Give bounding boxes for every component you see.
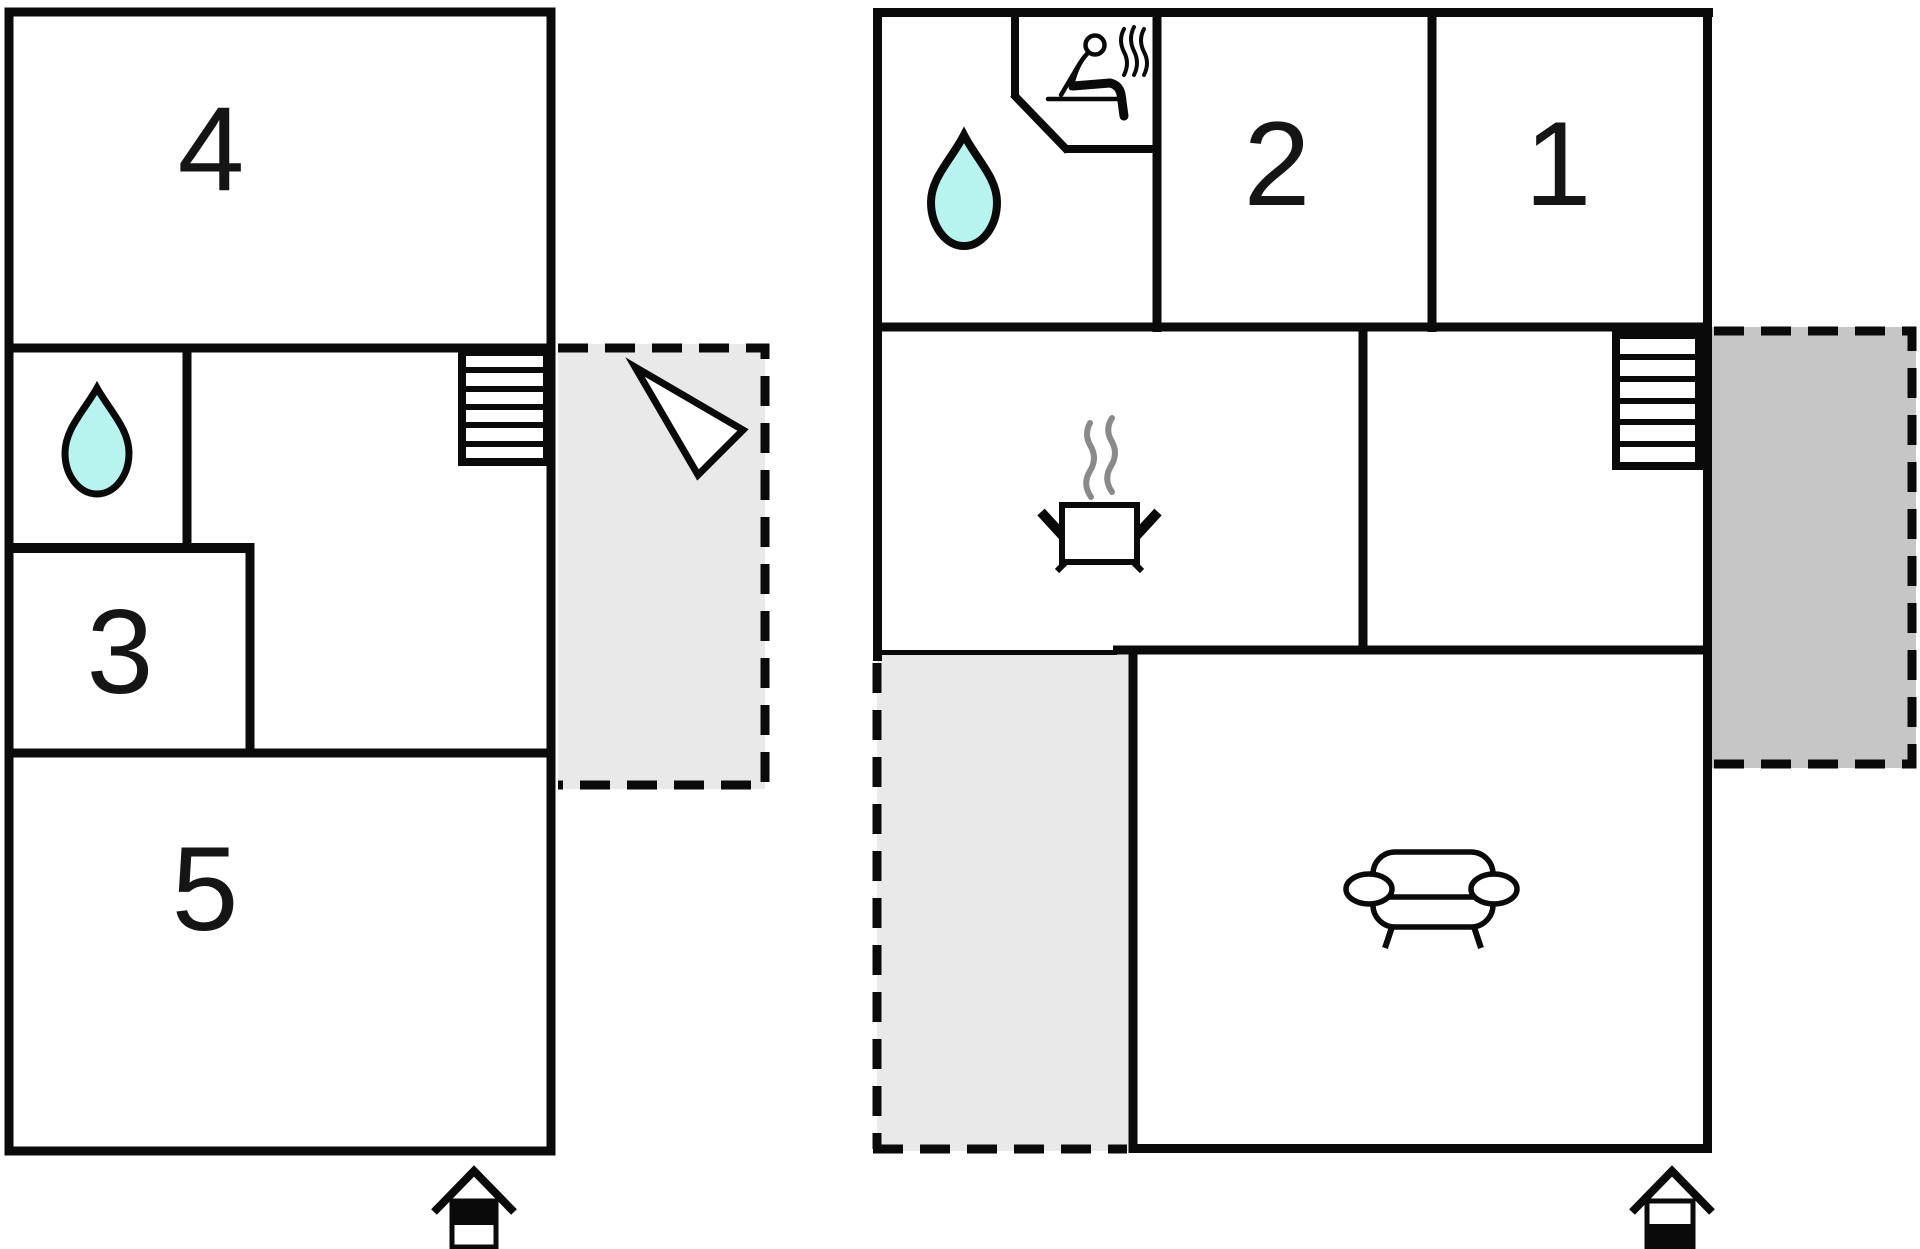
right-plan: 2 1 bbox=[873, 8, 1916, 1249]
cooking-pot-icon bbox=[1041, 418, 1158, 571]
sauna-steam bbox=[1121, 27, 1147, 75]
sauna-person-thigh bbox=[1073, 83, 1110, 86]
left-plan: 4 3 5 bbox=[5, 12, 765, 1247]
stairs-icon bbox=[1612, 335, 1703, 466]
bottom-terrace-top-edge bbox=[877, 650, 1117, 655]
floor-plan-page: 4 3 5 bbox=[0, 0, 1920, 1249]
room-label-1: 1 bbox=[1525, 97, 1592, 231]
water-drop-icon bbox=[931, 135, 997, 246]
sofa-left-armrest bbox=[1346, 874, 1392, 904]
right-wall bbox=[1703, 8, 1712, 1153]
house-entrance-icon bbox=[1632, 1171, 1712, 1249]
sauna-person-icon bbox=[1048, 27, 1147, 116]
room-label-5: 5 bbox=[172, 822, 239, 956]
right-side-terrace bbox=[1708, 327, 1916, 768]
bottom-terrace bbox=[877, 653, 1133, 1151]
room-label-2: 2 bbox=[1244, 97, 1311, 231]
pot-steam bbox=[1086, 418, 1115, 497]
pot-body bbox=[1062, 505, 1137, 562]
left-wall bbox=[873, 8, 882, 661]
water-drop-icon bbox=[65, 388, 129, 494]
sauna-person-head bbox=[1086, 36, 1105, 55]
sofa-icon bbox=[1346, 852, 1517, 948]
top-wall bbox=[873, 8, 1713, 17]
house-entrance-icon bbox=[434, 1171, 514, 1247]
sauna-person-arm bbox=[1061, 63, 1080, 95]
sofa-right-armrest bbox=[1471, 874, 1517, 904]
sauna-chamfer-wall bbox=[1013, 94, 1068, 151]
floor-plan-drawing: 4 3 5 bbox=[0, 0, 1920, 1249]
sofa-left-leg bbox=[1385, 927, 1392, 948]
left-outer-wall bbox=[9, 12, 551, 1151]
bottom-wall bbox=[1129, 1144, 1712, 1153]
room-label-4: 4 bbox=[178, 82, 245, 216]
stairs-icon bbox=[458, 352, 551, 462]
sofa-right-leg bbox=[1474, 927, 1481, 948]
room-label-3: 3 bbox=[87, 585, 154, 719]
